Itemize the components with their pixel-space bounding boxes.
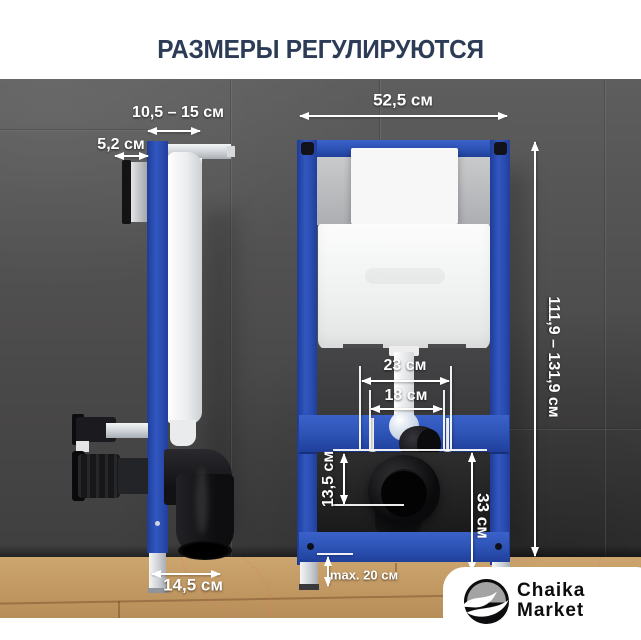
flush-unit-cover [351,148,458,224]
cistern-front [318,224,490,350]
page-title: РАЗМЕРЫ РЕГУЛИРУЮТСЯ [19,34,622,65]
wall-tile-seam [379,79,381,141]
crossbar-bolt [307,543,314,550]
brand-logo [464,579,509,624]
frame-screw-cap [494,142,507,155]
dim-extension-line [450,366,452,450]
brand-card: Chaika Market [443,567,641,640]
brand-name: Chaika Market [517,581,585,621]
dim-tick-line [317,553,353,555]
wall-tile-seam [510,428,641,430]
dim-label-foot-depth: 14,5 см [163,577,223,594]
rail-screw [155,521,160,526]
dim-extension-line [443,390,445,450]
dim-arrow-depth-range [148,130,200,132]
dim-arrow-outlet-drop [343,454,345,504]
cistern-side [167,152,202,424]
flush-plate-housing [131,162,148,222]
inlet-connector [106,423,148,438]
seagull-icon [460,590,512,620]
frame-left-rail [297,140,317,565]
cistern-embossed-logo [365,268,445,284]
foot-base-front-left [299,584,319,590]
dim-reference-line [333,449,487,451]
dim-label-frame-width: 52,5 см [373,92,433,109]
cistern-side-bottom [170,420,196,446]
frame-screw-cap [301,142,314,155]
dim-arrow-plate-depth [115,155,148,157]
dim-label-depth-range: 10,5 – 15 см [132,105,224,121]
wall-tile-seam [604,79,606,557]
brand-name-line1: Chaika [517,581,585,601]
flush-plate-side [122,160,131,224]
wall-tile-seam [0,129,148,131]
crossbar-bolt [495,543,502,550]
outlet-pipe-stub [78,454,120,498]
adjustable-foot-front-left [300,562,318,586]
dim-arrow-fixing-inner [371,408,442,410]
brand-name-line2: Market [517,601,585,621]
product-image: РАЗМЕРЫ РЕГУЛИРУЮТСЯ [0,0,641,640]
frame-right-rail [490,140,510,565]
drain-elbow-opening [178,541,232,560]
dim-label-fixing-inner: 18 см [385,388,428,404]
dim-label-outlet-drop: 13,5 см [321,451,337,507]
dim-label-plate-depth: 5,2 см [97,137,144,153]
dim-label-outlet-height: 33 см [475,493,492,539]
dim-arrow-frame-height [534,142,536,556]
dim-label-fixing-outer: 23 см [384,358,427,374]
drain-outlet-hole [381,469,427,517]
dim-arrow-fixing-outer [362,380,449,382]
dim-extension-line [369,390,371,450]
elbow-highlight [196,468,208,534]
dim-label-frame-height: 111,9 – 131,9 см [545,296,561,417]
wall-bracket-end [227,146,235,157]
dim-arrow-frame-width [300,115,507,117]
dim-label-leg-extension: max. 20 см [330,569,398,582]
outlet-joint [118,458,148,494]
dim-arrow-leg-extension [327,557,329,586]
